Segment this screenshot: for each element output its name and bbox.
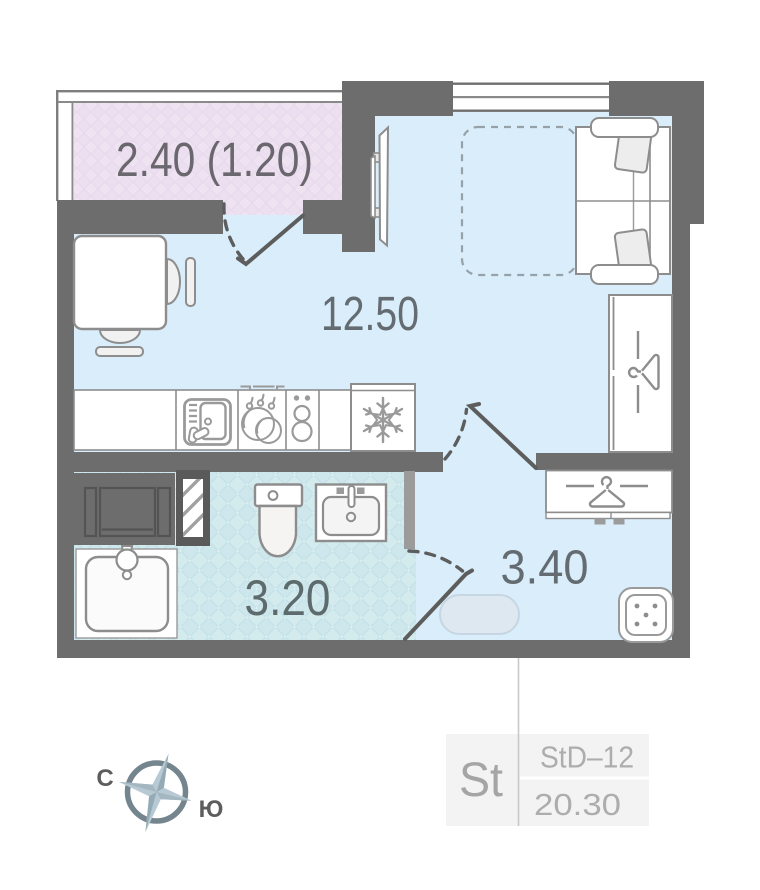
svg-text:St: St [459,754,503,807]
svg-text:С: С [96,765,113,792]
svg-text:Ю: Ю [199,796,224,823]
svg-text:3.20: 3.20 [245,570,331,626]
svg-text:3.40: 3.40 [501,542,589,595]
svg-text:20.30: 20.30 [534,787,621,822]
svg-text:StD–12: StD–12 [540,740,634,775]
svg-text:12.50: 12.50 [321,288,419,341]
svg-text:2.40 (1.20): 2.40 (1.20) [116,134,313,187]
